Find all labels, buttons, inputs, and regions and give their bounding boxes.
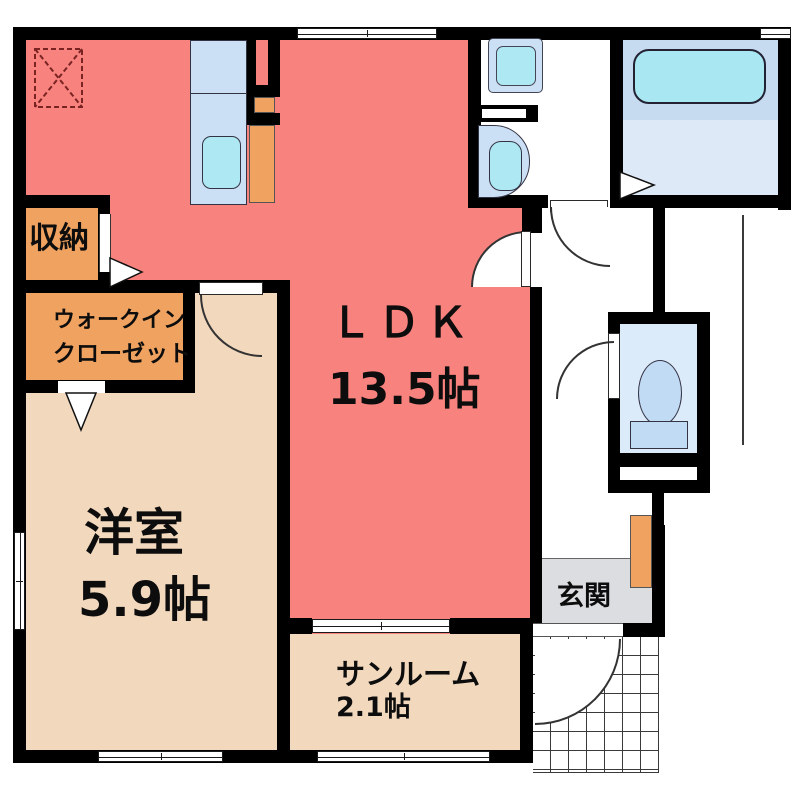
- toilet-window-slot: [620, 467, 697, 480]
- room-label-storage: 収納: [29, 224, 89, 254]
- wall: [242, 113, 280, 125]
- washroom-door-arc: [550, 207, 610, 267]
- wall: [530, 287, 542, 634]
- floor-plan: ＬＤＫ 13.5帖 洋室 5.9帖 サンルーム 2.1帖 収納 ウォークイン ク…: [0, 0, 800, 800]
- wall: [290, 618, 312, 634]
- ldk-door-leaf: [521, 231, 531, 287]
- window-western-bottom: [98, 751, 223, 762]
- room-label-sunroom: サンルーム: [336, 660, 480, 689]
- room-label-wic-line2: クローゼット: [53, 343, 191, 366]
- room-size-sunroom: 2.1帖: [336, 694, 411, 721]
- entrance-threshold: [533, 623, 623, 637]
- wall: [13, 195, 110, 208]
- toilet-bowl: [638, 360, 682, 426]
- washroom-shelf-slot: [482, 109, 526, 118]
- eaves-line: [742, 215, 744, 445]
- kitchen-side-counter: [249, 125, 275, 203]
- room-label-western: 洋室: [84, 508, 184, 558]
- washing-machine-pan-inner: [496, 46, 536, 86]
- bath-folding-door-icon: [616, 168, 658, 204]
- toilet-door-arc: [556, 341, 614, 399]
- wall: [450, 618, 533, 634]
- refrigerator-space-icon: [34, 48, 83, 108]
- wic-opening-arrow-icon: [60, 388, 100, 436]
- western-room-door-leaf: [199, 282, 263, 295]
- window-ldk-sunroom: [312, 619, 450, 633]
- wall: [13, 27, 26, 763]
- wall: [653, 208, 665, 312]
- kitchen-side-counter-upper: [254, 97, 275, 113]
- wall: [623, 623, 665, 637]
- wall: [520, 634, 533, 763]
- wall: [268, 40, 280, 85]
- room-label-entrance: 玄関: [557, 583, 611, 610]
- room-size-ldk: 13.5帖: [328, 368, 481, 412]
- shoe-cabinet: [630, 515, 652, 588]
- wall: [522, 195, 542, 233]
- wall: [608, 312, 620, 333]
- washbasin-bowl: [489, 141, 522, 191]
- room-label-ldk: ＬＤＫ: [330, 302, 474, 344]
- wall: [608, 312, 710, 324]
- wall: [778, 27, 791, 210]
- window-western-left: [14, 532, 25, 630]
- bathtub: [633, 49, 766, 104]
- wall: [277, 293, 290, 763]
- storage-opening-arrow-icon: [106, 252, 146, 292]
- window-ldk-top: [297, 28, 437, 39]
- wall: [652, 493, 664, 525]
- window-sunroom-bottom: [317, 751, 490, 762]
- room-label-wic-line1: ウォークイン: [53, 310, 185, 332]
- kitchen-sink: [202, 136, 241, 189]
- toilet-tank: [630, 421, 688, 449]
- wall: [652, 525, 665, 637]
- wall: [254, 85, 280, 97]
- window-bath-top: [760, 28, 791, 39]
- room-size-western: 5.9帖: [78, 576, 211, 624]
